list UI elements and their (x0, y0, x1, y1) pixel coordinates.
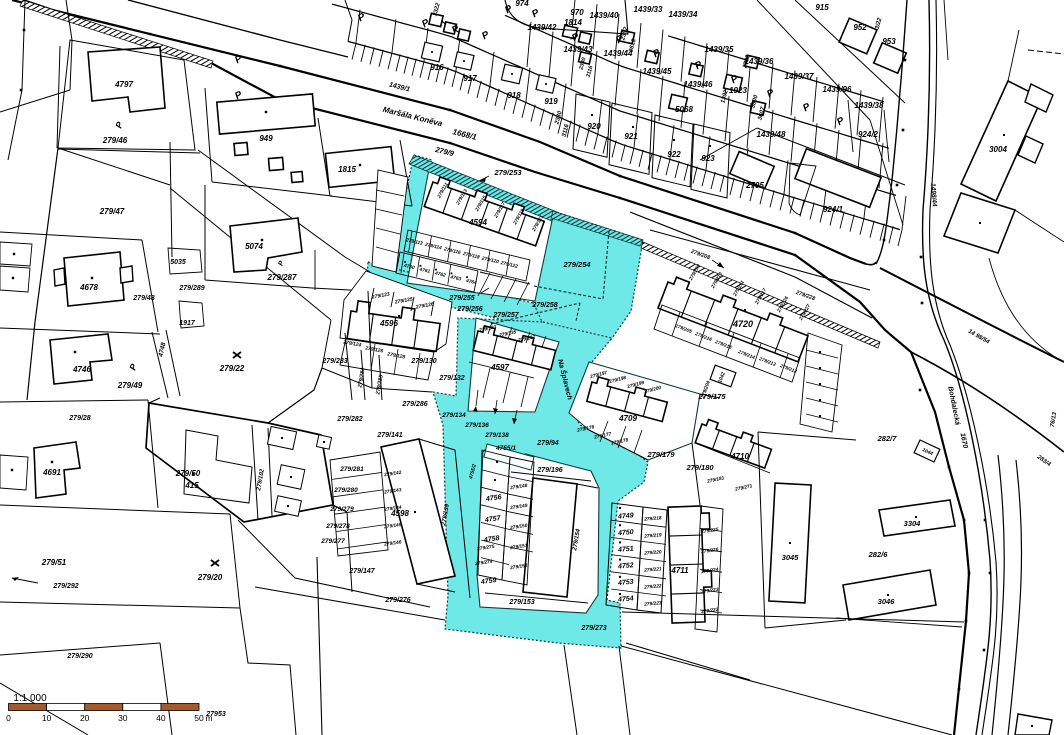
svg-text:27953: 27953 (205, 711, 226, 718)
svg-text:1439/42: 1439/42 (528, 23, 557, 32)
svg-text:279/46: 279/46 (102, 136, 128, 145)
svg-text:3304: 3304 (904, 519, 922, 528)
svg-text:4751: 4751 (617, 546, 634, 554)
svg-text:1439/96: 1439/96 (823, 85, 852, 94)
svg-text:1917: 1917 (179, 320, 196, 327)
svg-text:1439/45: 1439/45 (643, 67, 672, 76)
svg-text:1439/34: 1439/34 (669, 10, 698, 19)
svg-text:279/138: 279/138 (484, 432, 509, 439)
svg-text:279/132: 279/132 (438, 375, 464, 382)
svg-text:1:1 000: 1:1 000 (13, 693, 47, 704)
svg-text:4594: 4594 (468, 218, 487, 227)
svg-text:918: 918 (507, 91, 521, 100)
svg-text:4709: 4709 (618, 414, 637, 423)
svg-text:915: 915 (815, 3, 829, 12)
svg-text:1439/33: 1439/33 (634, 5, 663, 14)
svg-text:4797: 4797 (114, 80, 133, 89)
svg-text:3045: 3045 (782, 553, 800, 562)
svg-text:279/278: 279/278 (325, 523, 350, 530)
svg-text:5074: 5074 (245, 242, 263, 251)
svg-text:921: 921 (624, 132, 638, 141)
svg-text:953: 953 (882, 37, 896, 46)
svg-text:4710: 4710 (730, 452, 749, 461)
svg-text:279/287: 279/287 (267, 273, 297, 282)
svg-text:279/289: 279/289 (178, 285, 204, 292)
svg-text:279/153: 279/153 (508, 599, 534, 606)
svg-text:279/196: 279/196 (536, 467, 562, 474)
svg-text:282/6: 282/6 (868, 550, 889, 559)
svg-text:40: 40 (156, 713, 166, 723)
svg-text:282/7: 282/7 (877, 434, 898, 443)
svg-text:4752: 4752 (617, 562, 634, 570)
svg-text:279/292: 279/292 (52, 583, 78, 590)
svg-text:279/22: 279/22 (219, 364, 245, 373)
svg-text:279/136: 279/136 (464, 422, 489, 429)
svg-text:279/180: 279/180 (685, 463, 714, 472)
svg-text:5068: 5068 (675, 105, 693, 114)
svg-text:920: 920 (587, 122, 601, 131)
svg-text:279/147: 279/147 (348, 568, 375, 575)
svg-text:415: 415 (184, 481, 199, 490)
svg-text:279/258: 279/258 (531, 302, 557, 309)
svg-text:3046: 3046 (878, 597, 896, 606)
svg-text:10: 10 (42, 713, 52, 723)
svg-text:4678: 4678 (79, 283, 98, 292)
svg-text:2705: 2705 (745, 181, 764, 190)
svg-text:4746: 4746 (72, 365, 91, 374)
svg-text:1439/46: 1439/46 (684, 80, 713, 89)
svg-text:279/282: 279/282 (336, 416, 362, 423)
svg-text:279/134: 279/134 (441, 412, 466, 419)
svg-text:1439/37: 1439/37 (785, 72, 814, 81)
svg-text:279/254: 279/254 (562, 260, 591, 269)
svg-text:922: 922 (667, 150, 681, 159)
svg-text:4720: 4720 (732, 319, 753, 329)
svg-text:1814: 1814 (564, 18, 582, 27)
svg-text:279/20: 279/20 (197, 573, 223, 582)
svg-text:952: 952 (853, 23, 867, 32)
svg-text:279/257: 279/257 (492, 312, 519, 319)
svg-text:279/48: 279/48 (132, 295, 155, 302)
svg-text:279/283: 279/283 (321, 358, 347, 365)
svg-text:279/130: 279/130 (410, 358, 436, 365)
svg-text:279/277: 279/277 (320, 538, 345, 545)
svg-text:1923: 1923 (729, 86, 747, 95)
svg-text:4754: 4754 (617, 595, 634, 603)
svg-text:279/253: 279/253 (493, 168, 522, 177)
svg-text:5035: 5035 (170, 259, 186, 266)
svg-text:916: 916 (430, 63, 444, 72)
svg-text:919: 919 (544, 97, 558, 106)
svg-text:50: 50 (194, 713, 204, 723)
svg-text:279/276: 279/276 (384, 597, 410, 604)
svg-text:279/256: 279/256 (456, 306, 482, 313)
svg-text:1439/40: 1439/40 (590, 11, 619, 20)
svg-text:949: 949 (259, 134, 273, 143)
svg-text:279/51: 279/51 (41, 558, 67, 567)
svg-text:279/290: 279/290 (66, 653, 92, 660)
svg-text:279/281: 279/281 (339, 466, 364, 473)
svg-text:279/94: 279/94 (536, 440, 559, 447)
svg-text:4749: 4749 (617, 512, 634, 520)
svg-text:970: 970 (570, 8, 584, 17)
svg-text:279/141: 279/141 (376, 432, 402, 439)
svg-text:279/255: 279/255 (448, 295, 474, 302)
svg-text:924/1: 924/1 (823, 205, 844, 214)
svg-text:1815: 1815 (338, 165, 356, 174)
svg-text:30: 30 (118, 713, 128, 723)
svg-text:974: 974 (515, 0, 529, 8)
svg-text:279/47: 279/47 (99, 207, 125, 216)
svg-text:279/286: 279/286 (401, 401, 427, 408)
svg-text:4596: 4596 (379, 319, 398, 328)
svg-text:279/279: 279/279 (329, 506, 354, 513)
svg-text:1439/35: 1439/35 (705, 45, 734, 54)
svg-text:20: 20 (80, 713, 90, 723)
svg-text:279/280: 279/280 (333, 487, 358, 494)
svg-text:1439/43: 1439/43 (564, 45, 593, 54)
svg-text:4750: 4750 (617, 529, 634, 537)
svg-text:917: 917 (463, 74, 477, 83)
svg-text:4711: 4711 (670, 566, 689, 575)
svg-text:0: 0 (6, 713, 11, 723)
svg-text:4755/1: 4755/1 (495, 445, 516, 452)
svg-text:4691: 4691 (42, 468, 61, 477)
svg-text:3004: 3004 (989, 145, 1007, 154)
svg-text:279/28: 279/28 (68, 415, 91, 422)
svg-text:279/273: 279/273 (580, 625, 606, 632)
svg-text:279/179: 279/179 (646, 450, 675, 459)
svg-text:279/49: 279/49 (117, 381, 143, 390)
svg-text:4753: 4753 (617, 579, 634, 587)
